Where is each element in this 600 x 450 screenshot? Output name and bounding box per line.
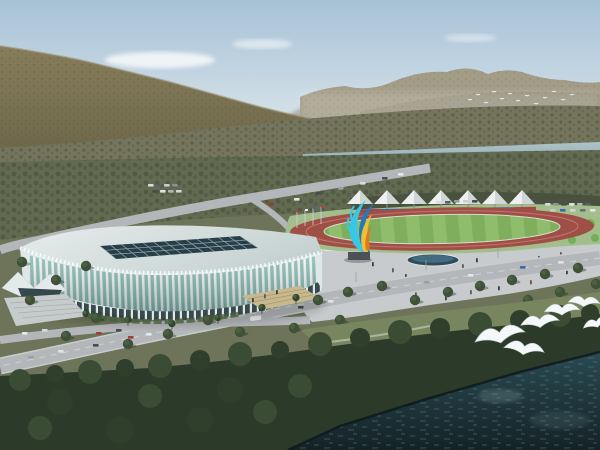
vehicle bbox=[96, 332, 102, 335]
person bbox=[470, 290, 472, 294]
vehicle bbox=[520, 266, 526, 269]
vehicle bbox=[28, 356, 34, 359]
water-glow bbox=[478, 389, 522, 403]
cloud bbox=[105, 52, 215, 68]
vehicle bbox=[463, 200, 469, 203]
stadium bbox=[2, 225, 325, 330]
pedestal bbox=[348, 252, 370, 260]
person bbox=[392, 268, 394, 272]
vehicle bbox=[328, 300, 334, 303]
vehicle bbox=[58, 350, 64, 353]
vehicle bbox=[468, 274, 474, 277]
person bbox=[372, 262, 374, 266]
vehicle bbox=[168, 190, 174, 193]
vehicle bbox=[152, 190, 158, 193]
vehicle bbox=[561, 203, 567, 206]
vehicle bbox=[382, 177, 388, 180]
vehicle bbox=[558, 261, 564, 264]
vehicle bbox=[42, 329, 48, 332]
vehicle bbox=[436, 201, 442, 204]
vehicle bbox=[472, 200, 478, 203]
scene-rendering bbox=[0, 0, 600, 450]
vehicle bbox=[268, 203, 274, 206]
vehicle bbox=[360, 182, 366, 185]
vehicle bbox=[545, 203, 551, 206]
person bbox=[498, 286, 500, 290]
vehicle bbox=[294, 198, 300, 201]
water-glow bbox=[530, 411, 590, 429]
vehicle bbox=[128, 336, 134, 339]
vehicle bbox=[176, 190, 182, 193]
rendering-viewport bbox=[0, 0, 600, 450]
vehicle bbox=[570, 209, 576, 212]
person bbox=[252, 298, 254, 302]
vehicle bbox=[156, 184, 162, 187]
person bbox=[276, 290, 278, 294]
person bbox=[462, 264, 464, 268]
vehicle bbox=[172, 184, 178, 187]
vehicle bbox=[338, 187, 344, 190]
vehicle bbox=[146, 333, 152, 336]
vehicle bbox=[116, 329, 122, 332]
vehicle bbox=[580, 209, 586, 212]
vehicle bbox=[445, 201, 451, 204]
vehicle bbox=[424, 281, 430, 284]
vehicle bbox=[590, 209, 596, 212]
vehicle bbox=[93, 344, 99, 347]
vehicle bbox=[22, 332, 28, 335]
vehicle bbox=[577, 203, 583, 206]
vehicle bbox=[148, 184, 154, 187]
cloud bbox=[444, 34, 496, 42]
cloud bbox=[232, 39, 292, 49]
vehicle bbox=[569, 203, 575, 206]
vehicle bbox=[160, 190, 166, 193]
pool-highlight bbox=[412, 255, 454, 263]
vehicle bbox=[585, 203, 591, 206]
vehicle bbox=[550, 209, 556, 212]
person bbox=[476, 258, 478, 262]
person bbox=[530, 280, 532, 284]
vehicle bbox=[454, 200, 460, 203]
vehicle bbox=[316, 192, 322, 195]
vehicle bbox=[560, 209, 566, 212]
vehicle bbox=[164, 184, 170, 187]
person bbox=[264, 294, 266, 298]
vehicle bbox=[398, 173, 404, 176]
vehicle bbox=[553, 203, 559, 206]
